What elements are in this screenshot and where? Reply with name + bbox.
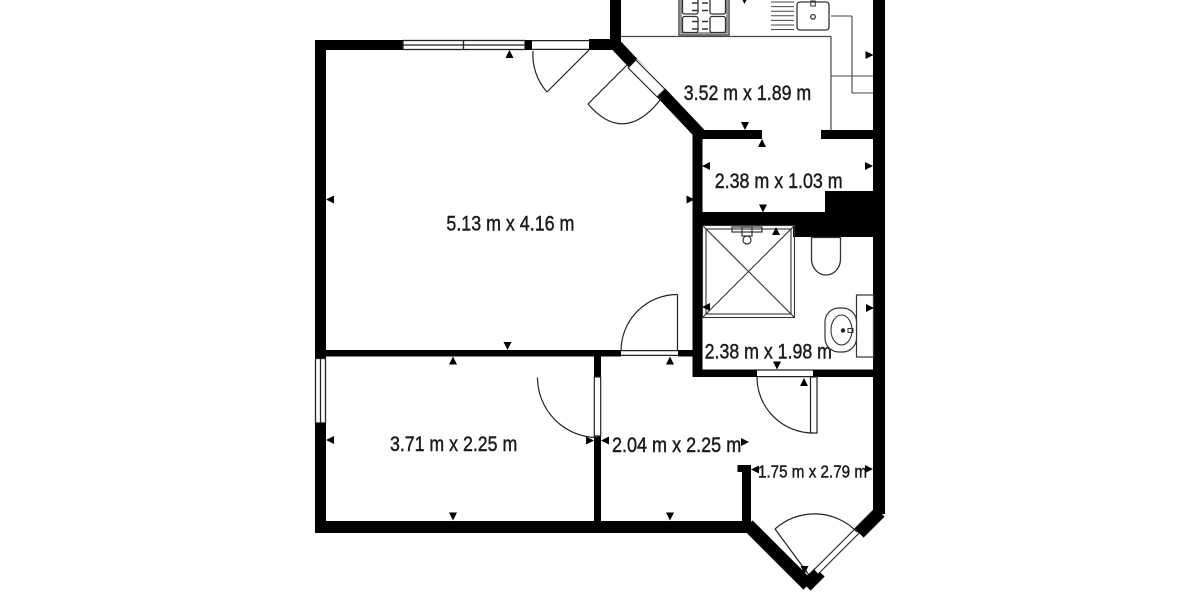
svg-text:3.52 m x 1.89 m: 3.52 m x 1.89 m xyxy=(684,82,812,105)
svg-text:3.71 m x 2.25 m: 3.71 m x 2.25 m xyxy=(390,433,517,456)
svg-text:1.75 m x 2.79 m: 1.75 m x 2.79 m xyxy=(758,462,867,482)
svg-text:5.13 m x 4.16 m: 5.13 m x 4.16 m xyxy=(446,213,574,236)
svg-text:2.38 m x 1.03 m: 2.38 m x 1.03 m xyxy=(715,170,843,193)
svg-text:2.38 m x 1.98 m: 2.38 m x 1.98 m xyxy=(705,341,832,364)
svg-text:2.04 m x 2.25 m: 2.04 m x 2.25 m xyxy=(612,434,741,457)
